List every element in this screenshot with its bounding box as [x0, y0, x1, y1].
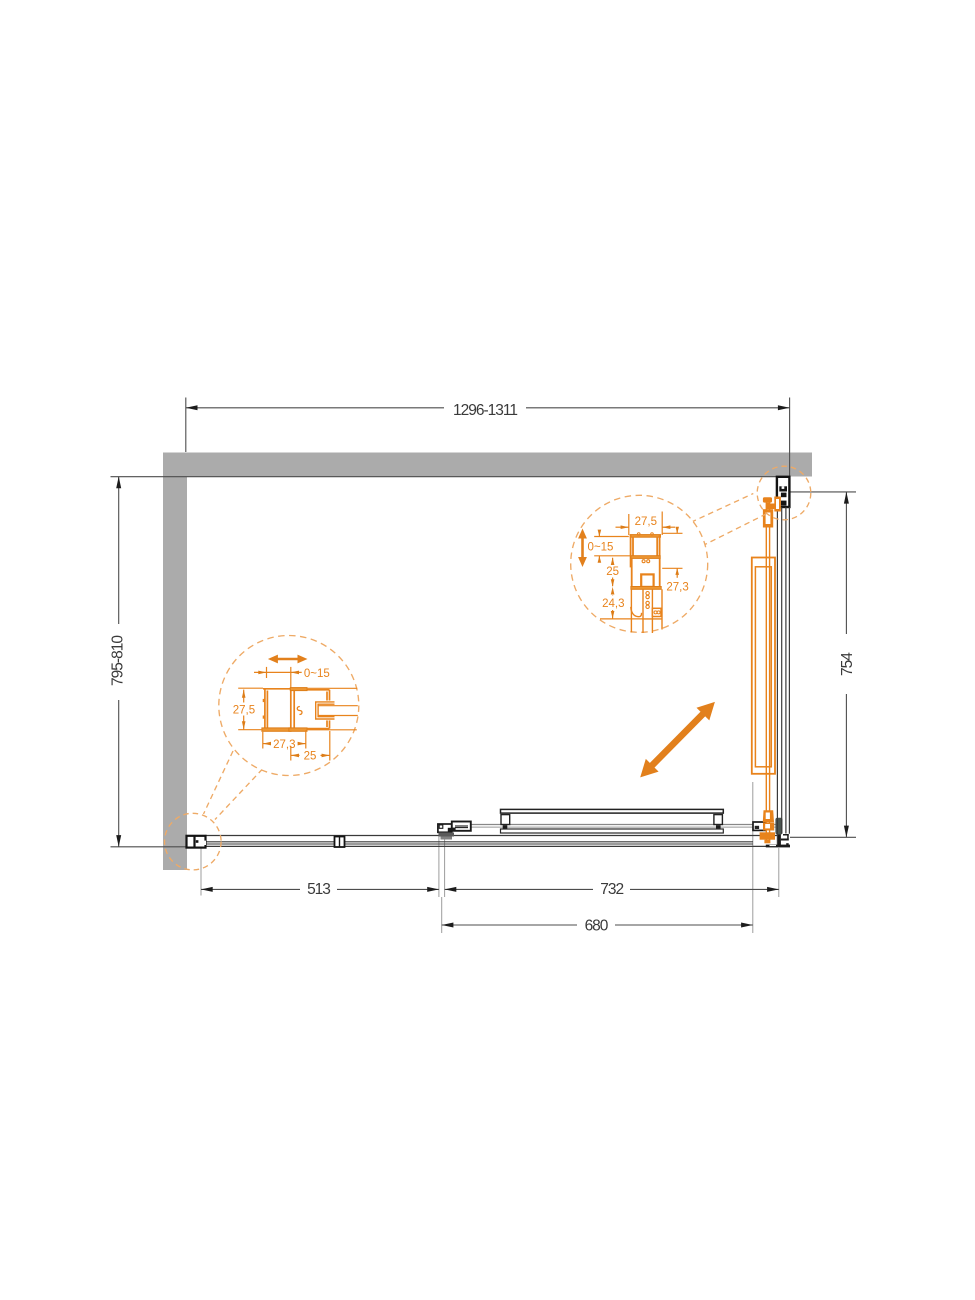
svg-text:754: 754 [839, 652, 856, 676]
svg-text:27,3: 27,3 [666, 582, 688, 594]
svg-text:795-810: 795-810 [109, 635, 126, 686]
svg-text:1296-1311: 1296-1311 [453, 402, 517, 419]
svg-text:25: 25 [304, 751, 317, 763]
svg-text:25: 25 [606, 566, 619, 578]
svg-text:24,3: 24,3 [602, 598, 624, 610]
svg-text:680: 680 [585, 918, 609, 935]
svg-text:0~15: 0~15 [304, 668, 330, 680]
svg-text:732: 732 [600, 881, 623, 898]
svg-text:27,3: 27,3 [273, 739, 295, 751]
svg-text:27,5: 27,5 [233, 704, 255, 716]
svg-text:0~15: 0~15 [588, 542, 614, 554]
svg-text:27,5: 27,5 [635, 516, 657, 528]
svg-text:513: 513 [307, 881, 330, 898]
